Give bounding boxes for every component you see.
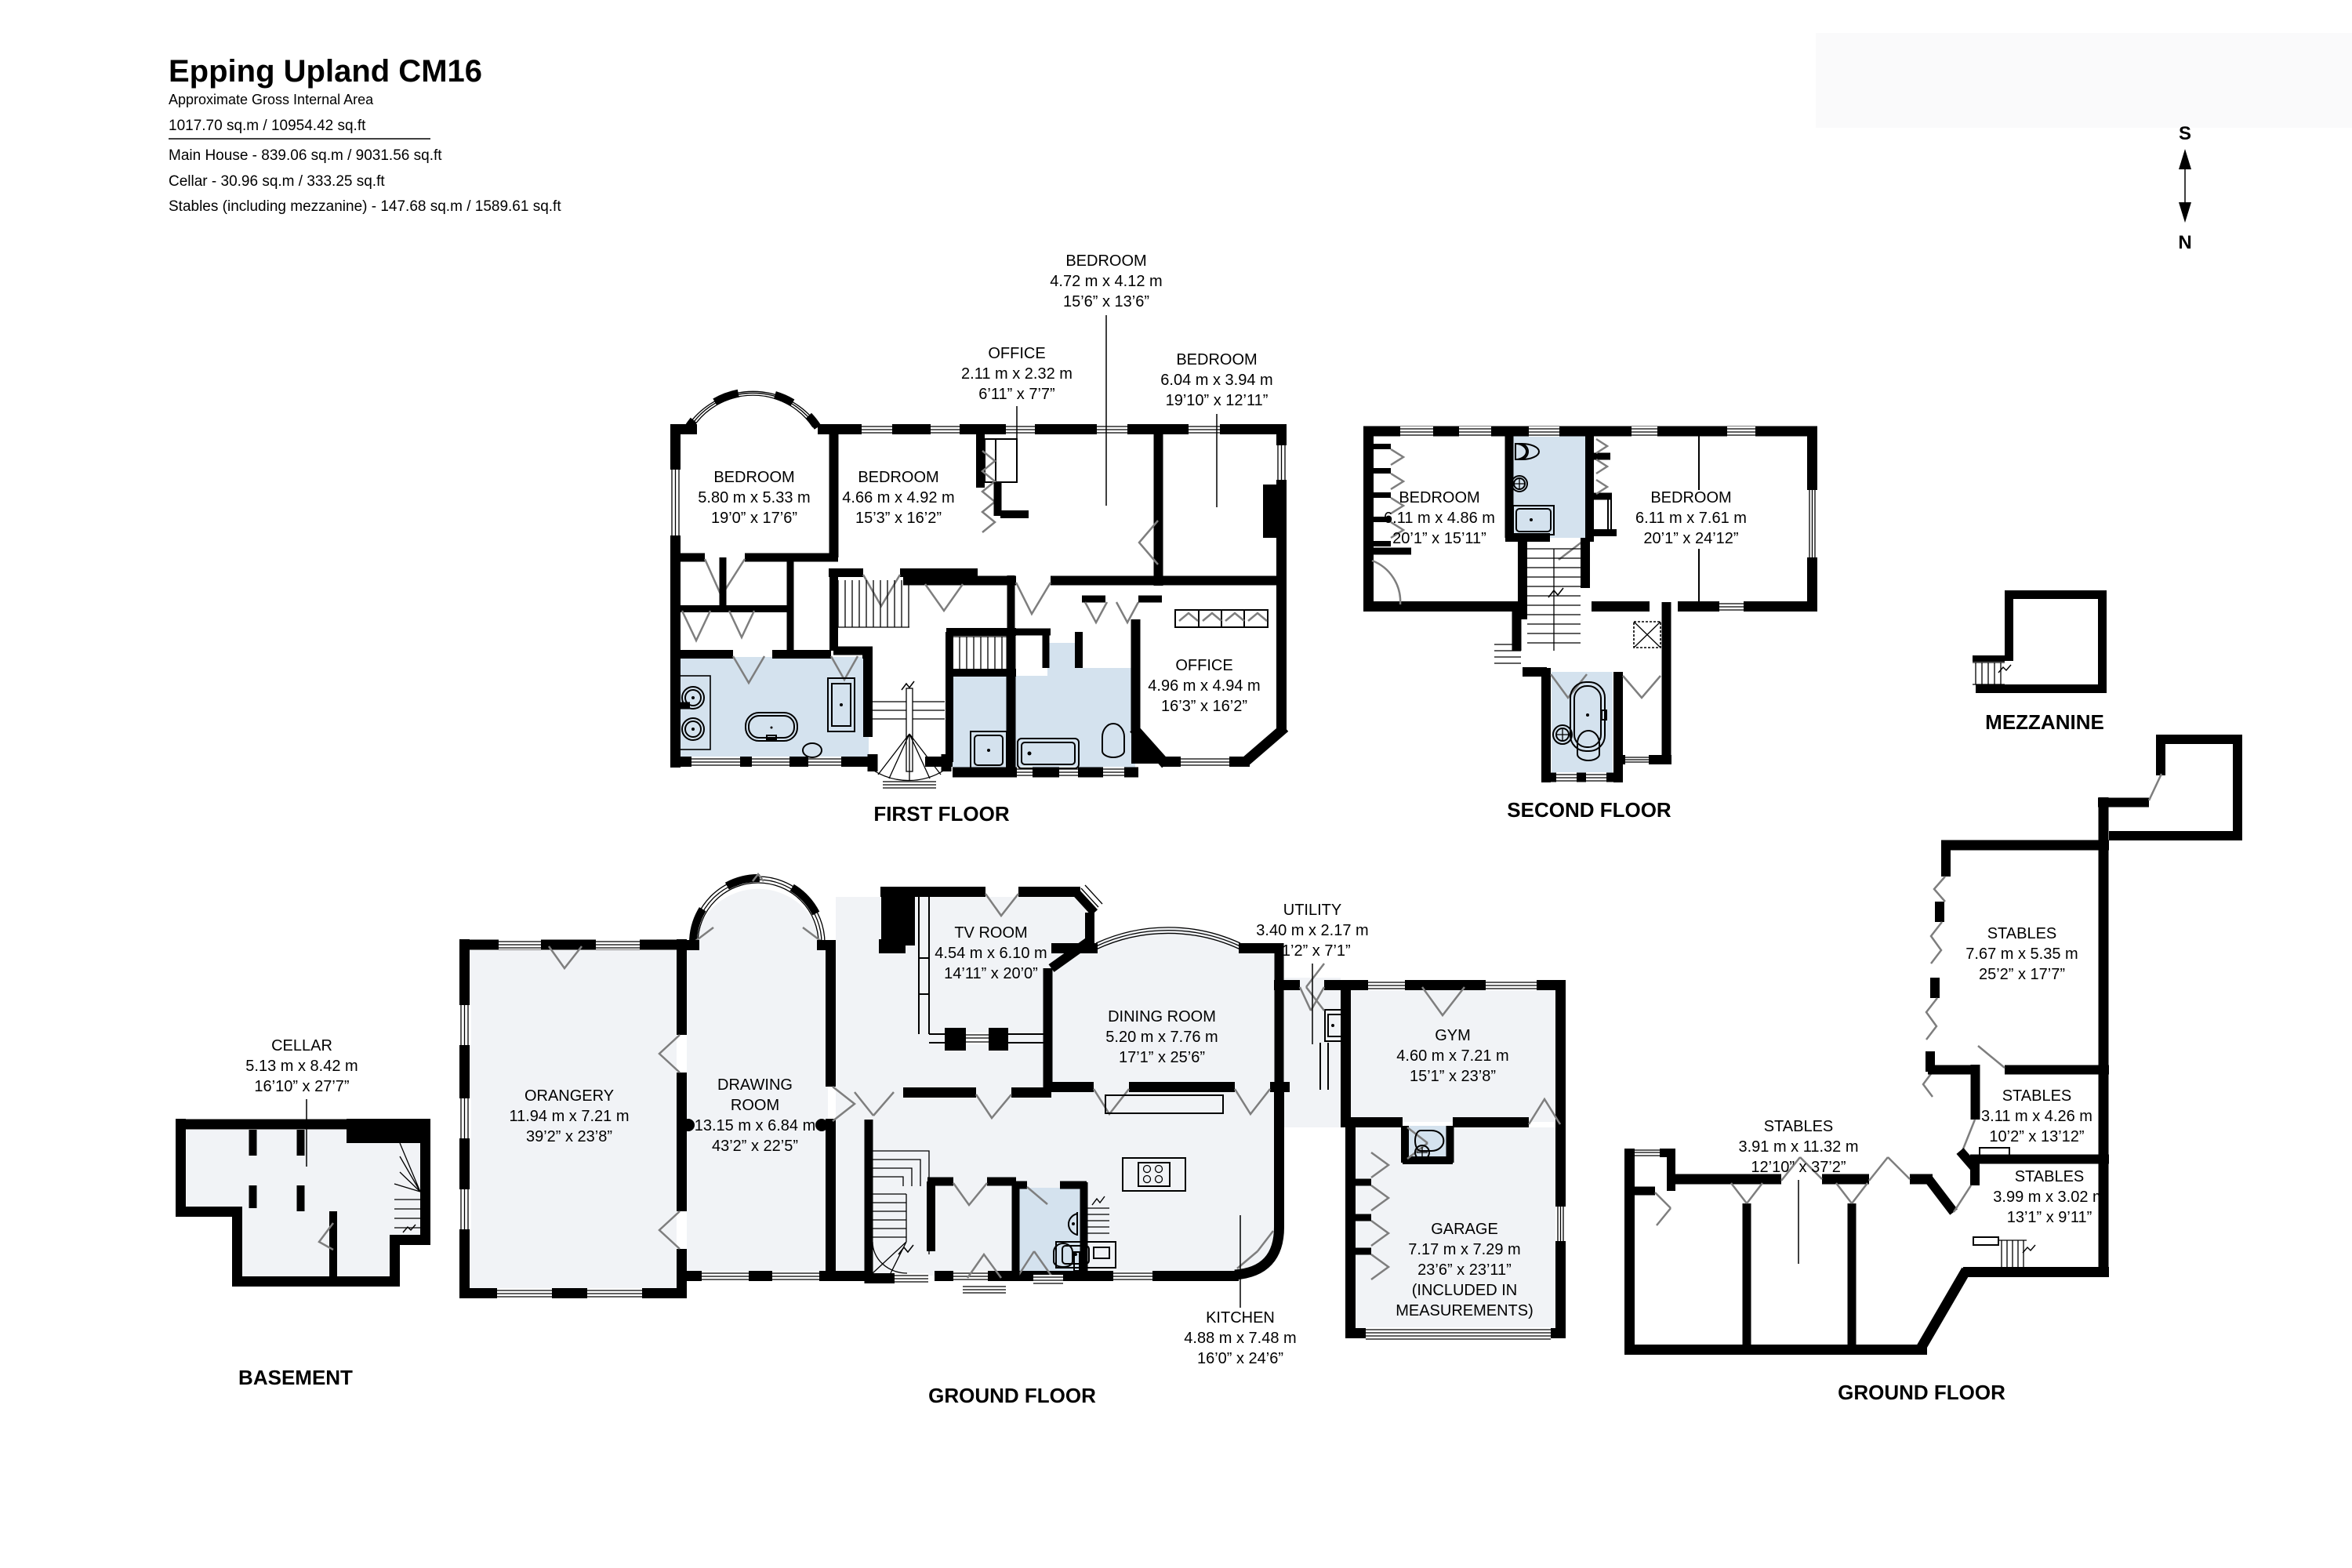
svg-text:DRAWING: DRAWING (717, 1076, 793, 1094)
svg-text:4.72 m x 4.12 m: 4.72 m x 4.12 m (1050, 273, 1162, 290)
svg-text:39’2” x 23’8”: 39’2” x 23’8” (526, 1128, 612, 1145)
svg-text:7.17 m x 7.29 m: 7.17 m x 7.29 m (1408, 1241, 1520, 1258)
svg-text:(INCLUDED IN: (INCLUDED IN (1412, 1282, 1517, 1299)
svg-text:4.96 m x 4.94 m: 4.96 m x 4.94 m (1148, 677, 1260, 695)
svg-text:6.11 m x 7.61 m: 6.11 m x 7.61 m (1635, 510, 1747, 527)
svg-text:GROUND FLOOR: GROUND FLOOR (1838, 1381, 2005, 1404)
svg-text:TV ROOM: TV ROOM (954, 924, 1027, 942)
svg-text:2.11 m x 2.32 m: 2.11 m x 2.32 m (961, 365, 1073, 383)
svg-text:STABLES: STABLES (1987, 925, 2057, 942)
svg-text:SECOND FLOOR: SECOND FLOOR (1507, 798, 1671, 822)
svg-text:ORANGERY: ORANGERY (524, 1087, 614, 1105)
svg-text:BASEMENT: BASEMENT (238, 1366, 353, 1389)
svg-text:GARAGE: GARAGE (1431, 1221, 1498, 1238)
svg-text:3.40 m x 2.17 m: 3.40 m x 2.17 m (1256, 922, 1368, 939)
svg-text:7.67 m x 5.35 m: 7.67 m x 5.35 m (1965, 946, 2078, 963)
svg-text:3.91 m x 11.32 m: 3.91 m x 11.32 m (1738, 1138, 1858, 1156)
svg-text:N: N (2178, 232, 2191, 253)
svg-text:BEDROOM: BEDROOM (1650, 489, 1731, 506)
svg-text:6.11 m x 4.86 m: 6.11 m x 4.86 m (1384, 510, 1495, 527)
svg-text:11’2” x 7’1”: 11’2” x 7’1” (1274, 942, 1350, 960)
svg-text:Cellar - 30.96 sq.m / 333.25 s: Cellar - 30.96 sq.m / 333.25 sq.ft (169, 173, 385, 190)
svg-text:OFFICE: OFFICE (1175, 657, 1232, 674)
svg-text:15’6” x 13’6”: 15’6” x 13’6” (1063, 293, 1149, 310)
svg-text:MEZZANINE: MEZZANINE (1985, 710, 2104, 734)
svg-text:Approximate Gross Internal Are: Approximate Gross Internal Area (169, 92, 374, 107)
svg-text:BEDROOM: BEDROOM (1176, 351, 1257, 368)
svg-text:20’1” x 24’12”: 20’1” x 24’12” (1643, 530, 1738, 547)
svg-text:Epping Upland CM16: Epping Upland CM16 (169, 54, 482, 89)
svg-text:BEDROOM: BEDROOM (858, 469, 938, 486)
svg-text:25’2” x 17’7”: 25’2” x 17’7” (1979, 966, 2065, 983)
svg-text:4.60 m x 7.21 m: 4.60 m x 7.21 m (1396, 1047, 1508, 1065)
svg-text:Main House - 839.06 sq.m / 903: Main House - 839.06 sq.m / 9031.56 sq.ft (169, 147, 442, 164)
svg-text:6’11” x 7’7”: 6’11” x 7’7” (978, 386, 1054, 403)
svg-text:3.11 m x 4.26 m: 3.11 m x 4.26 m (1981, 1108, 2092, 1125)
svg-text:43’2” x 22’5”: 43’2” x 22’5” (712, 1138, 798, 1155)
svg-text:OFFICE: OFFICE (988, 345, 1045, 362)
svg-text:13’1” x 9’11”: 13’1” x 9’11” (2007, 1209, 2092, 1226)
svg-text:15’3” x 16’2”: 15’3” x 16’2” (855, 510, 942, 527)
svg-text:CELLAR: CELLAR (271, 1037, 332, 1054)
svg-text:16’10” x 27’7”: 16’10” x 27’7” (254, 1078, 349, 1095)
svg-text:STABLES: STABLES (1764, 1118, 1834, 1135)
svg-text:BEDROOM: BEDROOM (713, 469, 794, 486)
svg-text:BEDROOM: BEDROOM (1065, 252, 1146, 270)
svg-text:MEASUREMENTS): MEASUREMENTS) (1396, 1302, 1534, 1319)
svg-text:ROOM: ROOM (731, 1097, 779, 1114)
svg-text:4.88 m x 7.48 m: 4.88 m x 7.48 m (1184, 1330, 1296, 1347)
svg-text:16’3” x 16’2”: 16’3” x 16’2” (1161, 698, 1247, 715)
svg-text:6.04 m x 3.94 m: 6.04 m x 3.94 m (1160, 372, 1272, 389)
svg-text:5.13 m x 8.42 m: 5.13 m x 8.42 m (245, 1058, 358, 1075)
svg-text:19’10” x 12’11”: 19’10” x 12’11” (1166, 392, 1269, 409)
svg-text:16’0” x 24’6”: 16’0” x 24’6” (1197, 1350, 1283, 1367)
svg-text:13.15 m x 6.84 m: 13.15 m x 6.84 m (695, 1117, 816, 1134)
svg-text:GROUND FLOOR: GROUND FLOOR (928, 1384, 1096, 1407)
svg-text:5.80 m x 5.33 m: 5.80 m x 5.33 m (698, 489, 810, 506)
svg-text:14’11” x 20’0”: 14’11” x 20’0” (944, 965, 1038, 982)
svg-text:15’1” x 23’8”: 15’1” x 23’8” (1410, 1068, 1496, 1085)
svg-text:11.94 m x 7.21 m: 11.94 m x 7.21 m (509, 1108, 629, 1125)
svg-text:19’0” x 17’6”: 19’0” x 17’6” (711, 510, 797, 527)
svg-text:KITCHEN: KITCHEN (1206, 1309, 1275, 1327)
svg-text:20’1” x 15’11”: 20’1” x 15’11” (1392, 530, 1486, 547)
svg-text:BEDROOM: BEDROOM (1399, 489, 1479, 506)
svg-text:12’10” x 37’2”: 12’10” x 37’2” (1751, 1159, 1846, 1176)
svg-text:4.54 m x 6.10 m: 4.54 m x 6.10 m (935, 945, 1047, 962)
svg-text:17’1” x 25’6”: 17’1” x 25’6” (1119, 1049, 1205, 1066)
svg-text:UTILITY: UTILITY (1283, 902, 1341, 919)
svg-text:GYM: GYM (1435, 1027, 1471, 1044)
svg-text:S: S (2179, 123, 2191, 144)
svg-text:10’2” x 13’12”: 10’2” x 13’12” (1989, 1128, 2084, 1145)
svg-text:5.20 m x 7.76 m: 5.20 m x 7.76 m (1105, 1029, 1218, 1046)
svg-text:STABLES: STABLES (2015, 1168, 2085, 1185)
svg-text:FIRST FLOOR: FIRST FLOOR (873, 802, 1010, 826)
svg-text:4.66 m x 4.92 m: 4.66 m x 4.92 m (842, 489, 954, 506)
svg-text:Stables (including mezzanine): Stables (including mezzanine) - 147.68 s… (169, 198, 561, 215)
svg-text:STABLES: STABLES (2002, 1087, 2072, 1105)
svg-text:3.99 m x 3.02 m: 3.99 m x 3.02 m (1993, 1189, 2105, 1206)
svg-text:23’6” x 23’11”: 23’6” x 23’11” (1417, 1261, 1512, 1279)
svg-text:DINING ROOM: DINING ROOM (1108, 1008, 1216, 1025)
svg-text:1017.70 sq.m / 10954.42 sq.ft: 1017.70 sq.m / 10954.42 sq.ft (169, 118, 366, 134)
